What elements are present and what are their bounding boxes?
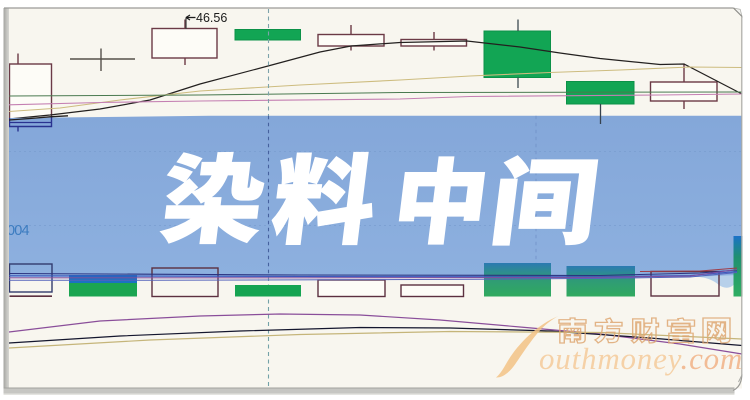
- svg-text:outhmoney.com: outhmoney.com: [539, 341, 743, 376]
- svg-text:004: 004: [7, 223, 30, 239]
- svg-text:46.56: 46.56: [196, 11, 227, 25]
